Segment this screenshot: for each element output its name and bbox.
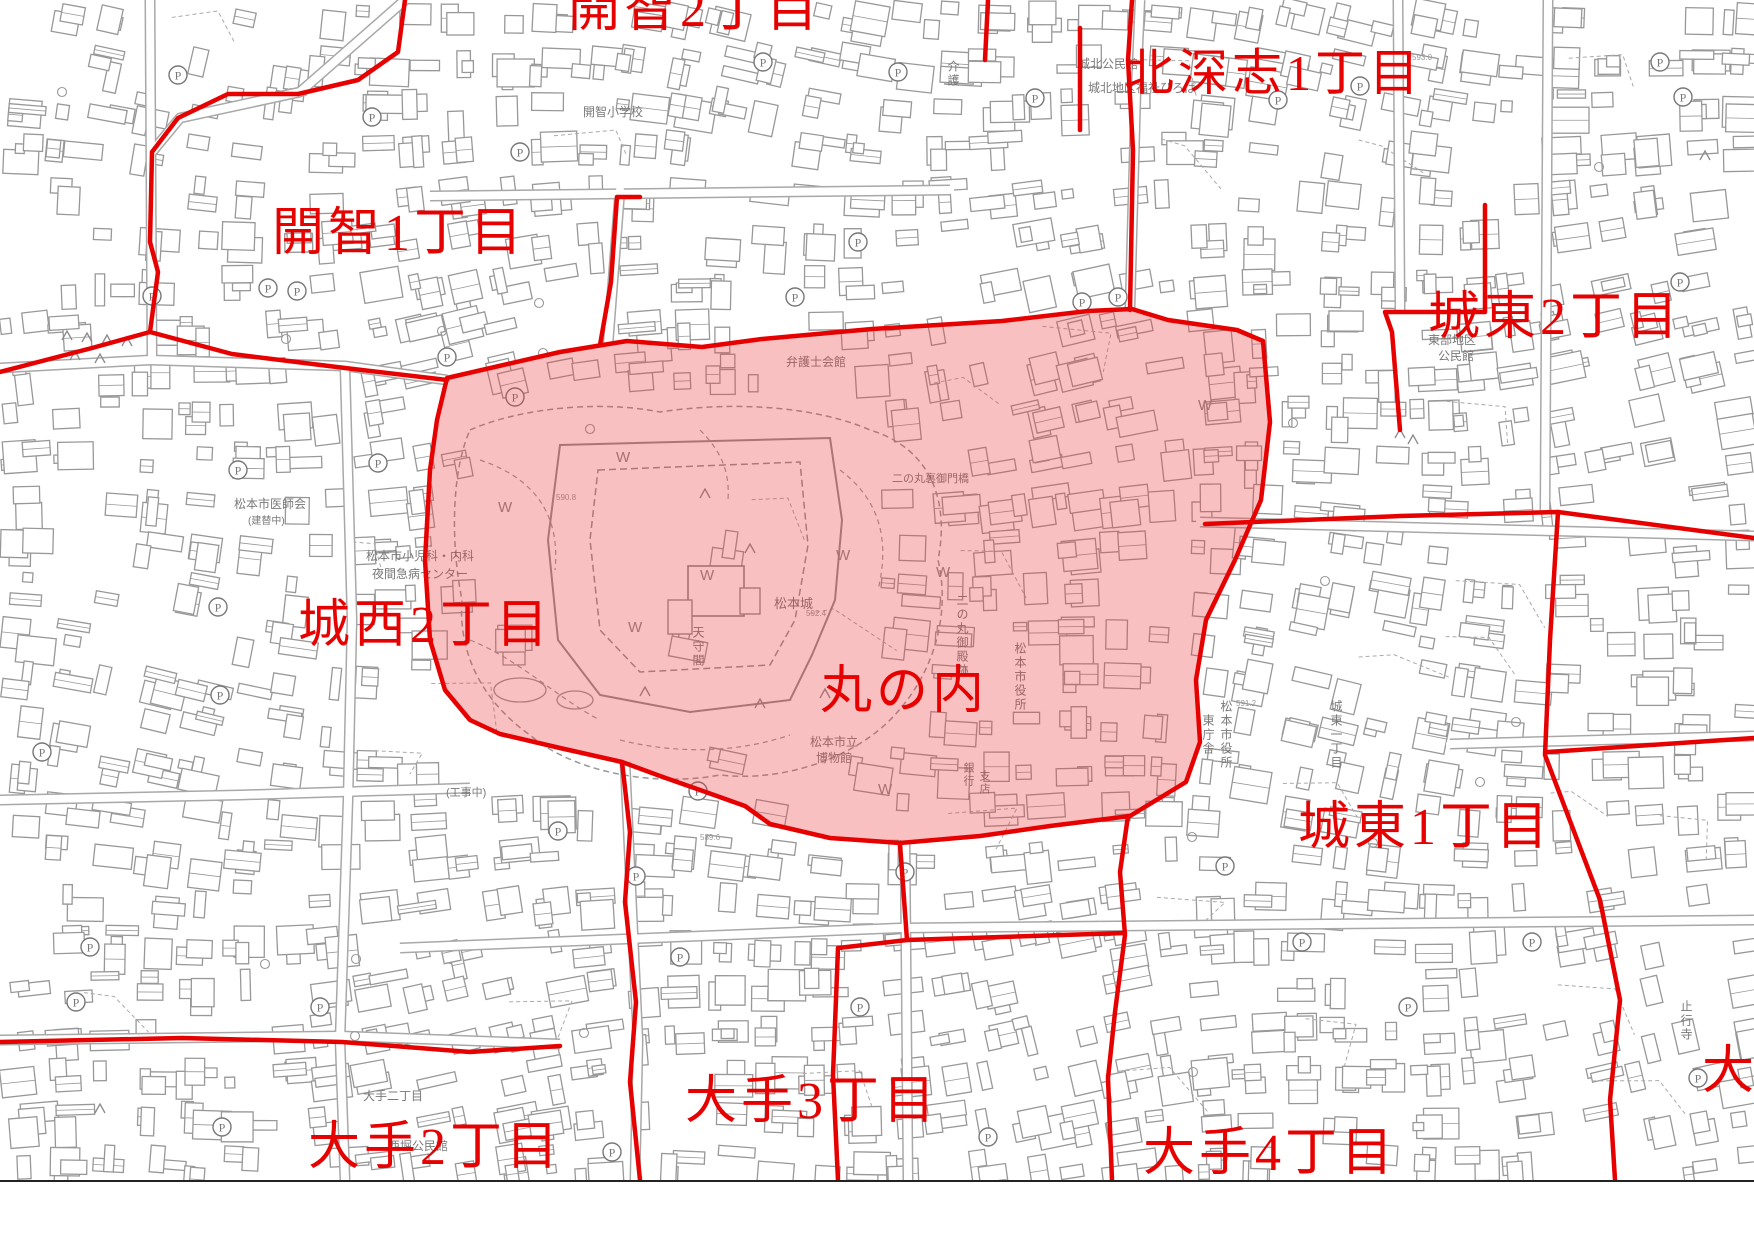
elevation-mark: 593.0 bbox=[1412, 53, 1433, 62]
svg-text:P: P bbox=[217, 689, 224, 703]
parking-icon: P bbox=[81, 938, 99, 956]
svg-text:P: P bbox=[265, 282, 272, 296]
parking-icon: P bbox=[754, 53, 772, 71]
svg-text:P: P bbox=[517, 146, 524, 160]
parking-icon: P bbox=[1073, 293, 1091, 311]
svg-text:P: P bbox=[1299, 936, 1306, 950]
parking-icon: P bbox=[1674, 88, 1692, 106]
parking-icon: P bbox=[1351, 77, 1369, 95]
svg-text:P: P bbox=[555, 825, 562, 839]
parking-icon: P bbox=[369, 454, 387, 472]
place-label: 松本市役所 bbox=[1219, 700, 1233, 770]
parking-icon: P bbox=[1399, 998, 1417, 1016]
svg-text:P: P bbox=[609, 1146, 616, 1160]
svg-text:P: P bbox=[1032, 92, 1039, 106]
parking-icon: P bbox=[1216, 857, 1234, 875]
parking-icon: P bbox=[67, 993, 85, 1011]
svg-text:P: P bbox=[219, 1121, 226, 1135]
place-label: 大手二丁目 bbox=[363, 1089, 423, 1103]
place-label: 城東一丁目 bbox=[1329, 700, 1343, 770]
svg-text:P: P bbox=[1677, 276, 1684, 290]
parking-icon: P bbox=[213, 1118, 231, 1136]
place-label: (建替中) bbox=[248, 514, 285, 527]
parking-icon: P bbox=[1689, 1069, 1707, 1087]
svg-text:P: P bbox=[369, 111, 376, 125]
tree-icon bbox=[95, 1104, 105, 1113]
svg-text:P: P bbox=[1079, 296, 1086, 310]
svg-text:P: P bbox=[1357, 80, 1364, 94]
parking-icon: P bbox=[603, 1143, 621, 1161]
svg-text:P: P bbox=[87, 941, 94, 955]
parking-icon: P bbox=[1671, 273, 1689, 291]
svg-text:P: P bbox=[1405, 1001, 1412, 1015]
svg-text:P: P bbox=[1275, 94, 1282, 108]
map-viewport: PPPPPPPPPPPPPPPPPPPPPPPPPPPPPPPPPPPPPPPP… bbox=[0, 0, 1754, 1240]
parking-icon: P bbox=[1269, 91, 1287, 109]
parking-icon: P bbox=[259, 279, 277, 297]
place-label: 松本市医師会 bbox=[234, 496, 306, 511]
svg-text:P: P bbox=[1222, 860, 1229, 874]
parking-icon: P bbox=[211, 686, 229, 704]
svg-text:P: P bbox=[633, 870, 640, 884]
svg-text:P: P bbox=[39, 746, 46, 760]
parking-icon: P bbox=[627, 867, 645, 885]
svg-text:P: P bbox=[73, 996, 80, 1010]
place-label: 止行寺 bbox=[1679, 1000, 1693, 1042]
svg-text:P: P bbox=[317, 1001, 324, 1015]
svg-text:P: P bbox=[1529, 936, 1536, 950]
parking-icon: P bbox=[1523, 933, 1541, 951]
parking-icon: P bbox=[311, 998, 329, 1016]
parking-icon: P bbox=[889, 63, 907, 81]
parking-icon: P bbox=[851, 998, 869, 1016]
place-label: 東部地区 bbox=[1428, 332, 1476, 347]
parking-icon: P bbox=[786, 288, 804, 306]
svg-text:P: P bbox=[1657, 56, 1664, 70]
svg-text:P: P bbox=[760, 56, 767, 70]
elevation-mark: 589.6 bbox=[700, 833, 721, 842]
parking-icon: P bbox=[169, 66, 187, 84]
parking-icon: P bbox=[896, 863, 914, 881]
place-label: 東庁舎 bbox=[1201, 714, 1215, 756]
parking-icon: P bbox=[1109, 288, 1127, 306]
parking-icon: P bbox=[288, 282, 306, 300]
highlighted-district-marunouchi bbox=[425, 309, 1270, 843]
svg-text:P: P bbox=[444, 351, 451, 365]
parking-icon: P bbox=[849, 233, 867, 251]
parking-icon: P bbox=[229, 461, 247, 479]
svg-text:P: P bbox=[175, 69, 182, 83]
parking-icon: P bbox=[1651, 53, 1669, 71]
svg-text:P: P bbox=[235, 464, 242, 478]
svg-text:P: P bbox=[1695, 1072, 1702, 1086]
base-map-layer: PPPPPPPPPPPPPPPPPPPPPPPPPPPPPPPPPPPPPPPP… bbox=[0, 0, 1754, 1180]
place-label: 公民館 bbox=[1438, 348, 1474, 363]
svg-text:P: P bbox=[855, 236, 862, 250]
map-bottom-margin bbox=[0, 1180, 1754, 1240]
parking-icon: P bbox=[671, 948, 689, 966]
svg-text:P: P bbox=[792, 291, 799, 305]
svg-text:P: P bbox=[375, 457, 382, 471]
parking-icon: P bbox=[363, 108, 381, 126]
parking-icon: P bbox=[438, 348, 456, 366]
svg-text:P: P bbox=[294, 285, 301, 299]
parking-icon: P bbox=[549, 822, 567, 840]
svg-text:P: P bbox=[895, 66, 902, 80]
parking-icon: P bbox=[33, 743, 51, 761]
svg-text:P: P bbox=[677, 951, 684, 965]
svg-text:P: P bbox=[215, 601, 222, 615]
elevation-mark: 591.2 bbox=[1236, 699, 1257, 708]
parking-icon: P bbox=[979, 1128, 997, 1146]
svg-text:P: P bbox=[1115, 291, 1122, 305]
svg-text:P: P bbox=[985, 1131, 992, 1145]
place-label: (工事中) bbox=[446, 786, 486, 799]
place-label: 介護 bbox=[946, 60, 960, 88]
tree-icon bbox=[1408, 435, 1418, 444]
place-label: 西堀公民館 bbox=[388, 1138, 448, 1153]
svg-text:P: P bbox=[857, 1001, 864, 1015]
parking-icon: P bbox=[511, 143, 529, 161]
place-label: 城北地区福祉ひろば bbox=[1088, 80, 1196, 95]
place-label: 開智小学校 bbox=[583, 104, 643, 119]
parking-icon: P bbox=[209, 598, 227, 616]
parking-icon: P bbox=[1293, 933, 1311, 951]
svg-text:P: P bbox=[1680, 91, 1687, 105]
parking-icon: P bbox=[1026, 89, 1044, 107]
